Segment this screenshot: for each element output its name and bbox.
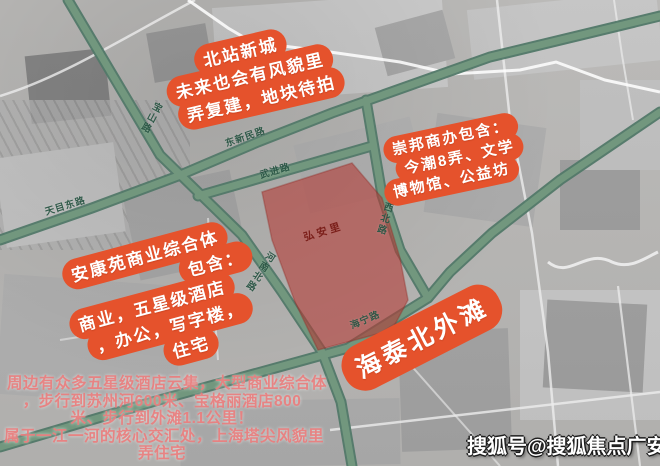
footer-line: 弄住宅 xyxy=(138,445,186,463)
watermark: 搜狐号@搜狐焦点广安站 xyxy=(467,430,660,459)
footer-line: 属于一江一河的核心交汇处，上海塔尖风貌里 xyxy=(4,428,324,446)
footer-text-block: 周边有众多五星级酒店云集，大型商业综合体 ，步行到苏州河600米、宝格丽酒店80… xyxy=(0,375,324,463)
river-path xyxy=(548,252,658,268)
footer-line: ，步行到苏州河600米、宝格丽酒店800 xyxy=(23,393,302,411)
minor-road-path xyxy=(330,392,660,430)
footer-line: 米、步行到外滩1.1公里！ xyxy=(70,410,253,428)
footer-line: 周边有众多五星级酒店云集，大型商业综合体 xyxy=(7,375,327,393)
map-canvas: 天目东路 宝山路 东新民路 武进路 江西北路 河南北路 海宁路 弘安里 北站新城… xyxy=(0,0,660,466)
